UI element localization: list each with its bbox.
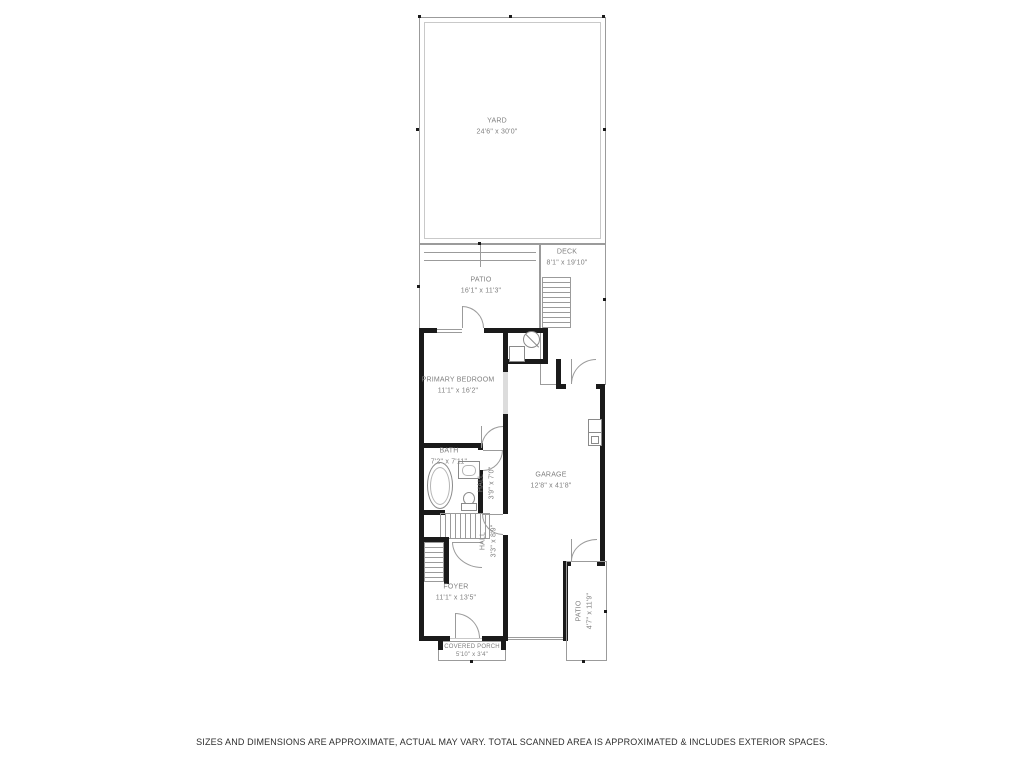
disclaimer-text: SIZES AND DIMENSIONS ARE APPROXIMATE, AC… [0, 737, 1024, 747]
room-name: GARAGE [531, 471, 572, 482]
hall-lower-label: HALL 3'3" x 8'9" [479, 525, 500, 558]
room-dims: 12'8" x 41'8" [531, 481, 572, 492]
measure-tick-icon [603, 128, 606, 131]
measure-tick-icon [602, 15, 605, 18]
deck-staircase-icon [542, 277, 571, 328]
room-name: FOYER [436, 583, 476, 594]
hvac-unit-icon [509, 346, 525, 362]
room-dims: 7'2" x 7'11" [431, 457, 467, 468]
door-opening [462, 328, 484, 333]
door-leaf [462, 306, 463, 328]
door-opening [566, 384, 596, 389]
room-name: PRIMARY BEDROOM [422, 376, 495, 387]
wall-porch-left [438, 641, 443, 650]
room-dims: 8'1" x 19'10" [547, 258, 588, 269]
measure-tick-icon [416, 128, 419, 131]
room-name: BATH [431, 447, 467, 458]
room-dims: 16'1" x 11'3" [461, 286, 501, 297]
electrical-panel-line [588, 432, 602, 433]
room-name: YARD [477, 117, 518, 128]
glass-window-icon [503, 372, 508, 414]
window-line [437, 332, 462, 333]
door-leaf [481, 426, 482, 448]
door-leaf [571, 359, 572, 384]
toilet-tank [461, 503, 477, 511]
door-leaf [571, 539, 572, 561]
door-opening [503, 514, 508, 535]
room-dims: 11'1" x 13'5" [436, 593, 476, 604]
bathtub-inner [430, 467, 450, 505]
garage-label: GARAGE 12'8" x 41'8" [531, 471, 572, 492]
room-dims: 5'10" x 3'4" [444, 651, 500, 659]
door-arc-icon [571, 539, 597, 561]
wall-porch-right [501, 641, 506, 650]
room-name: PATIO [575, 593, 586, 629]
deck-label: DECK 8'1" x 19'10" [547, 248, 588, 269]
floor-plan: YARD 24'6" x 30'0" PATIO 16'1" x 11'3" D… [0, 0, 1024, 768]
measure-tick-icon [470, 660, 473, 663]
measure-tick-icon [417, 285, 420, 288]
room-name: PATIO [461, 276, 501, 287]
bath-label: BATH 7'2" x 7'11" [431, 447, 467, 468]
garage-door-line [508, 639, 563, 640]
covered-porch-label: COVERED PORCH 5'10" x 3'4" [444, 643, 500, 659]
room-name: COVERED PORCH [444, 643, 500, 651]
window-line [437, 329, 462, 330]
door-arc-icon [452, 542, 482, 568]
door-leaf [455, 613, 456, 638]
patio-lower-label: PATIO 4'7" x 11'9" [575, 593, 596, 629]
door-leaf [483, 450, 503, 451]
door-leaf [482, 514, 503, 515]
water-heater-icon [523, 331, 540, 348]
room-name: HALL [477, 467, 488, 500]
door-arc-icon [455, 613, 480, 638]
wall-garage-right [600, 384, 605, 566]
room-name: HALL [479, 525, 490, 558]
measure-tick-icon [603, 298, 606, 301]
room-dims: 11'1" x 16'2" [422, 386, 495, 397]
water-heater-mark [526, 334, 539, 347]
garage-door-line [508, 637, 563, 638]
hall-upper-label: HALL 3'9" x 7'0" [477, 467, 498, 500]
door-threshold [450, 638, 482, 639]
room-dims: 24'6" x 30'0" [477, 127, 518, 138]
electrical-panel-switch [591, 436, 599, 444]
measure-tick-icon [604, 610, 607, 613]
room-dims: 3'3" x 8'9" [489, 525, 500, 558]
room-dims: 4'7" x 11'9" [585, 593, 596, 629]
yard-label: YARD 24'6" x 30'0" [477, 117, 518, 138]
measure-tick-icon [509, 15, 512, 18]
measure-tick-icon [582, 660, 585, 663]
door-leaf [452, 542, 482, 543]
wall-stair-side [444, 537, 449, 584]
primary-bedroom-label: PRIMARY BEDROOM 11'1" x 16'2" [422, 376, 495, 397]
measure-tick-icon [478, 242, 481, 245]
measure-tick-icon [418, 15, 421, 18]
door-arc-icon [481, 426, 503, 448]
room-dims: 3'9" x 7'0" [487, 467, 498, 500]
foyer-label: FOYER 11'1" x 13'5" [436, 583, 476, 604]
patio-upper-label: PATIO 16'1" x 11'3" [461, 276, 501, 297]
staircase-icon [424, 542, 444, 582]
room-name: DECK [547, 248, 588, 259]
patio-step-divider [480, 245, 481, 267]
